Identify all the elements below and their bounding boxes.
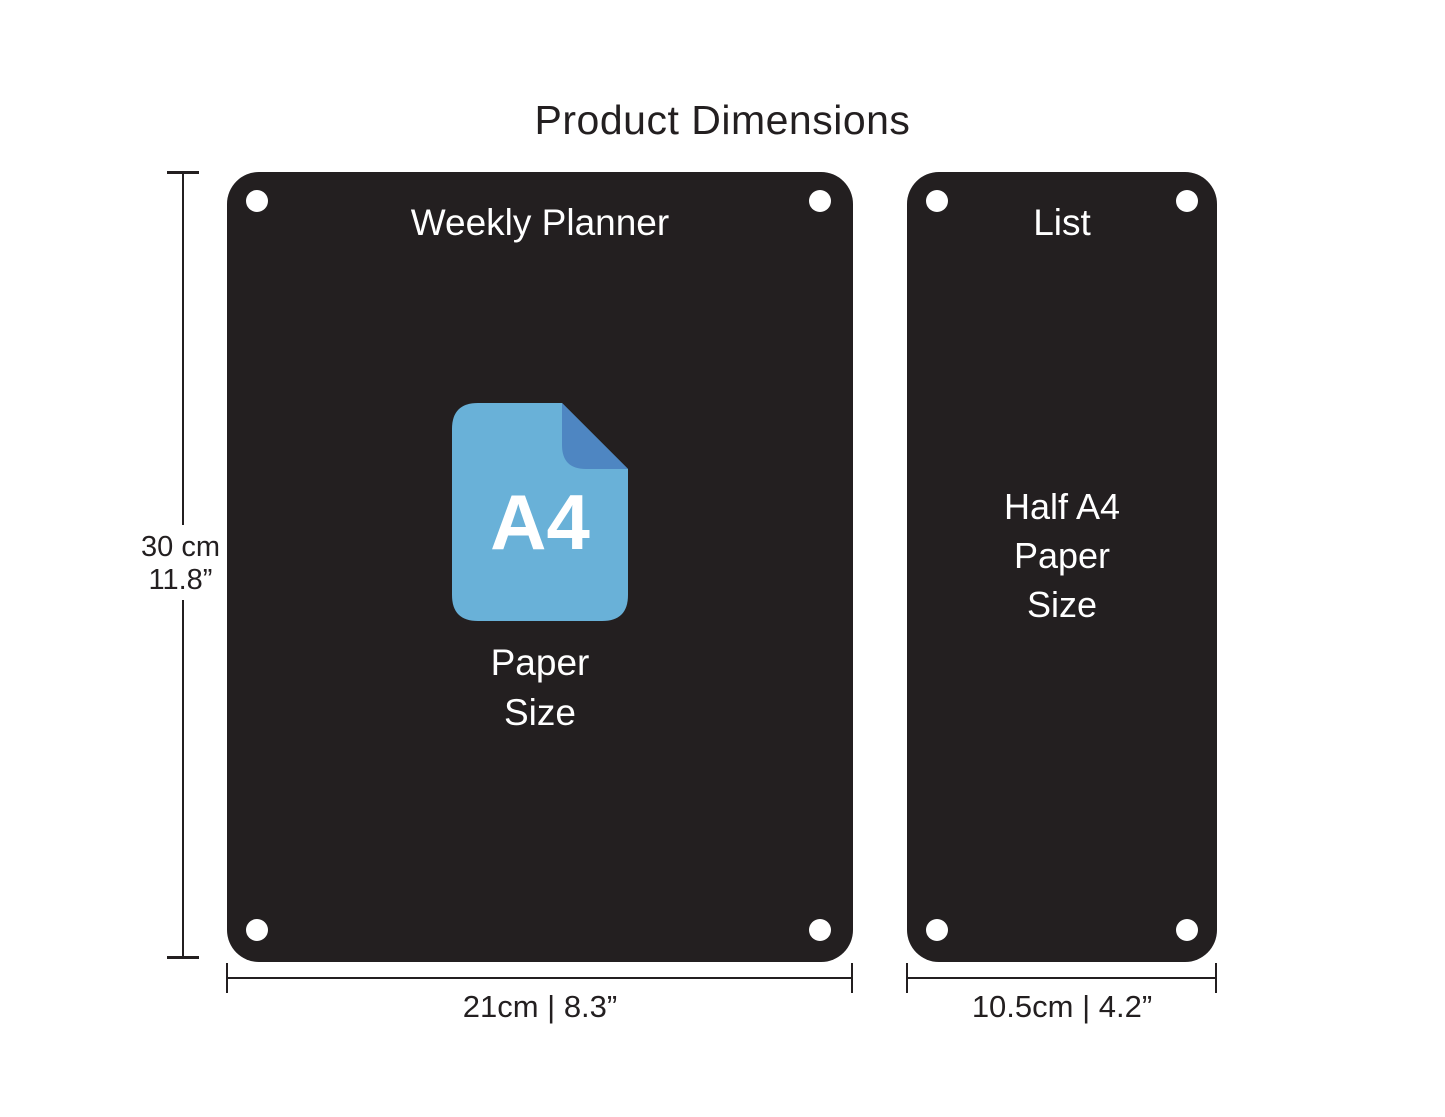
height-dim-line-upper — [182, 173, 184, 525]
width-dim1-label: 21cm | 8.3” — [227, 989, 853, 1025]
height-dim-bottom-cap — [167, 956, 199, 959]
width-dim1-line — [227, 977, 853, 979]
caption-line: Half A4 — [907, 482, 1217, 531]
caption-line: Size — [227, 688, 853, 738]
mounting-hole-bottom-right — [1176, 919, 1198, 941]
caption-line: Size — [907, 580, 1217, 629]
panel-title-list: List — [907, 202, 1217, 244]
caption-line: Paper — [907, 531, 1217, 580]
mounting-hole-bottom-left — [926, 919, 948, 941]
a4-icon-label: A4 — [490, 478, 590, 566]
width-dim2-label: 10.5cm | 4.2” — [907, 989, 1217, 1025]
mounting-hole-bottom-right — [809, 919, 831, 941]
half-a4-caption: Half A4 Paper Size — [907, 482, 1217, 629]
panel-title-weekly-planner: Weekly Planner — [227, 202, 853, 244]
list-board: List Half A4 Paper Size — [907, 172, 1217, 962]
a4-paper-icon: A4 — [452, 403, 628, 621]
height-dim-line-lower — [182, 600, 184, 957]
diagram-title: Product Dimensions — [0, 97, 1445, 144]
weekly-planner-board: Weekly Planner A4 Paper Size — [227, 172, 853, 962]
width-dim2-line — [907, 977, 1217, 979]
product-dimensions-diagram: Product Dimensions 30 cm 11.8” Weekly Pl… — [0, 0, 1445, 1117]
caption-line: Paper — [227, 638, 853, 688]
paper-size-caption: Paper Size — [227, 638, 853, 738]
mounting-hole-bottom-left — [246, 919, 268, 941]
